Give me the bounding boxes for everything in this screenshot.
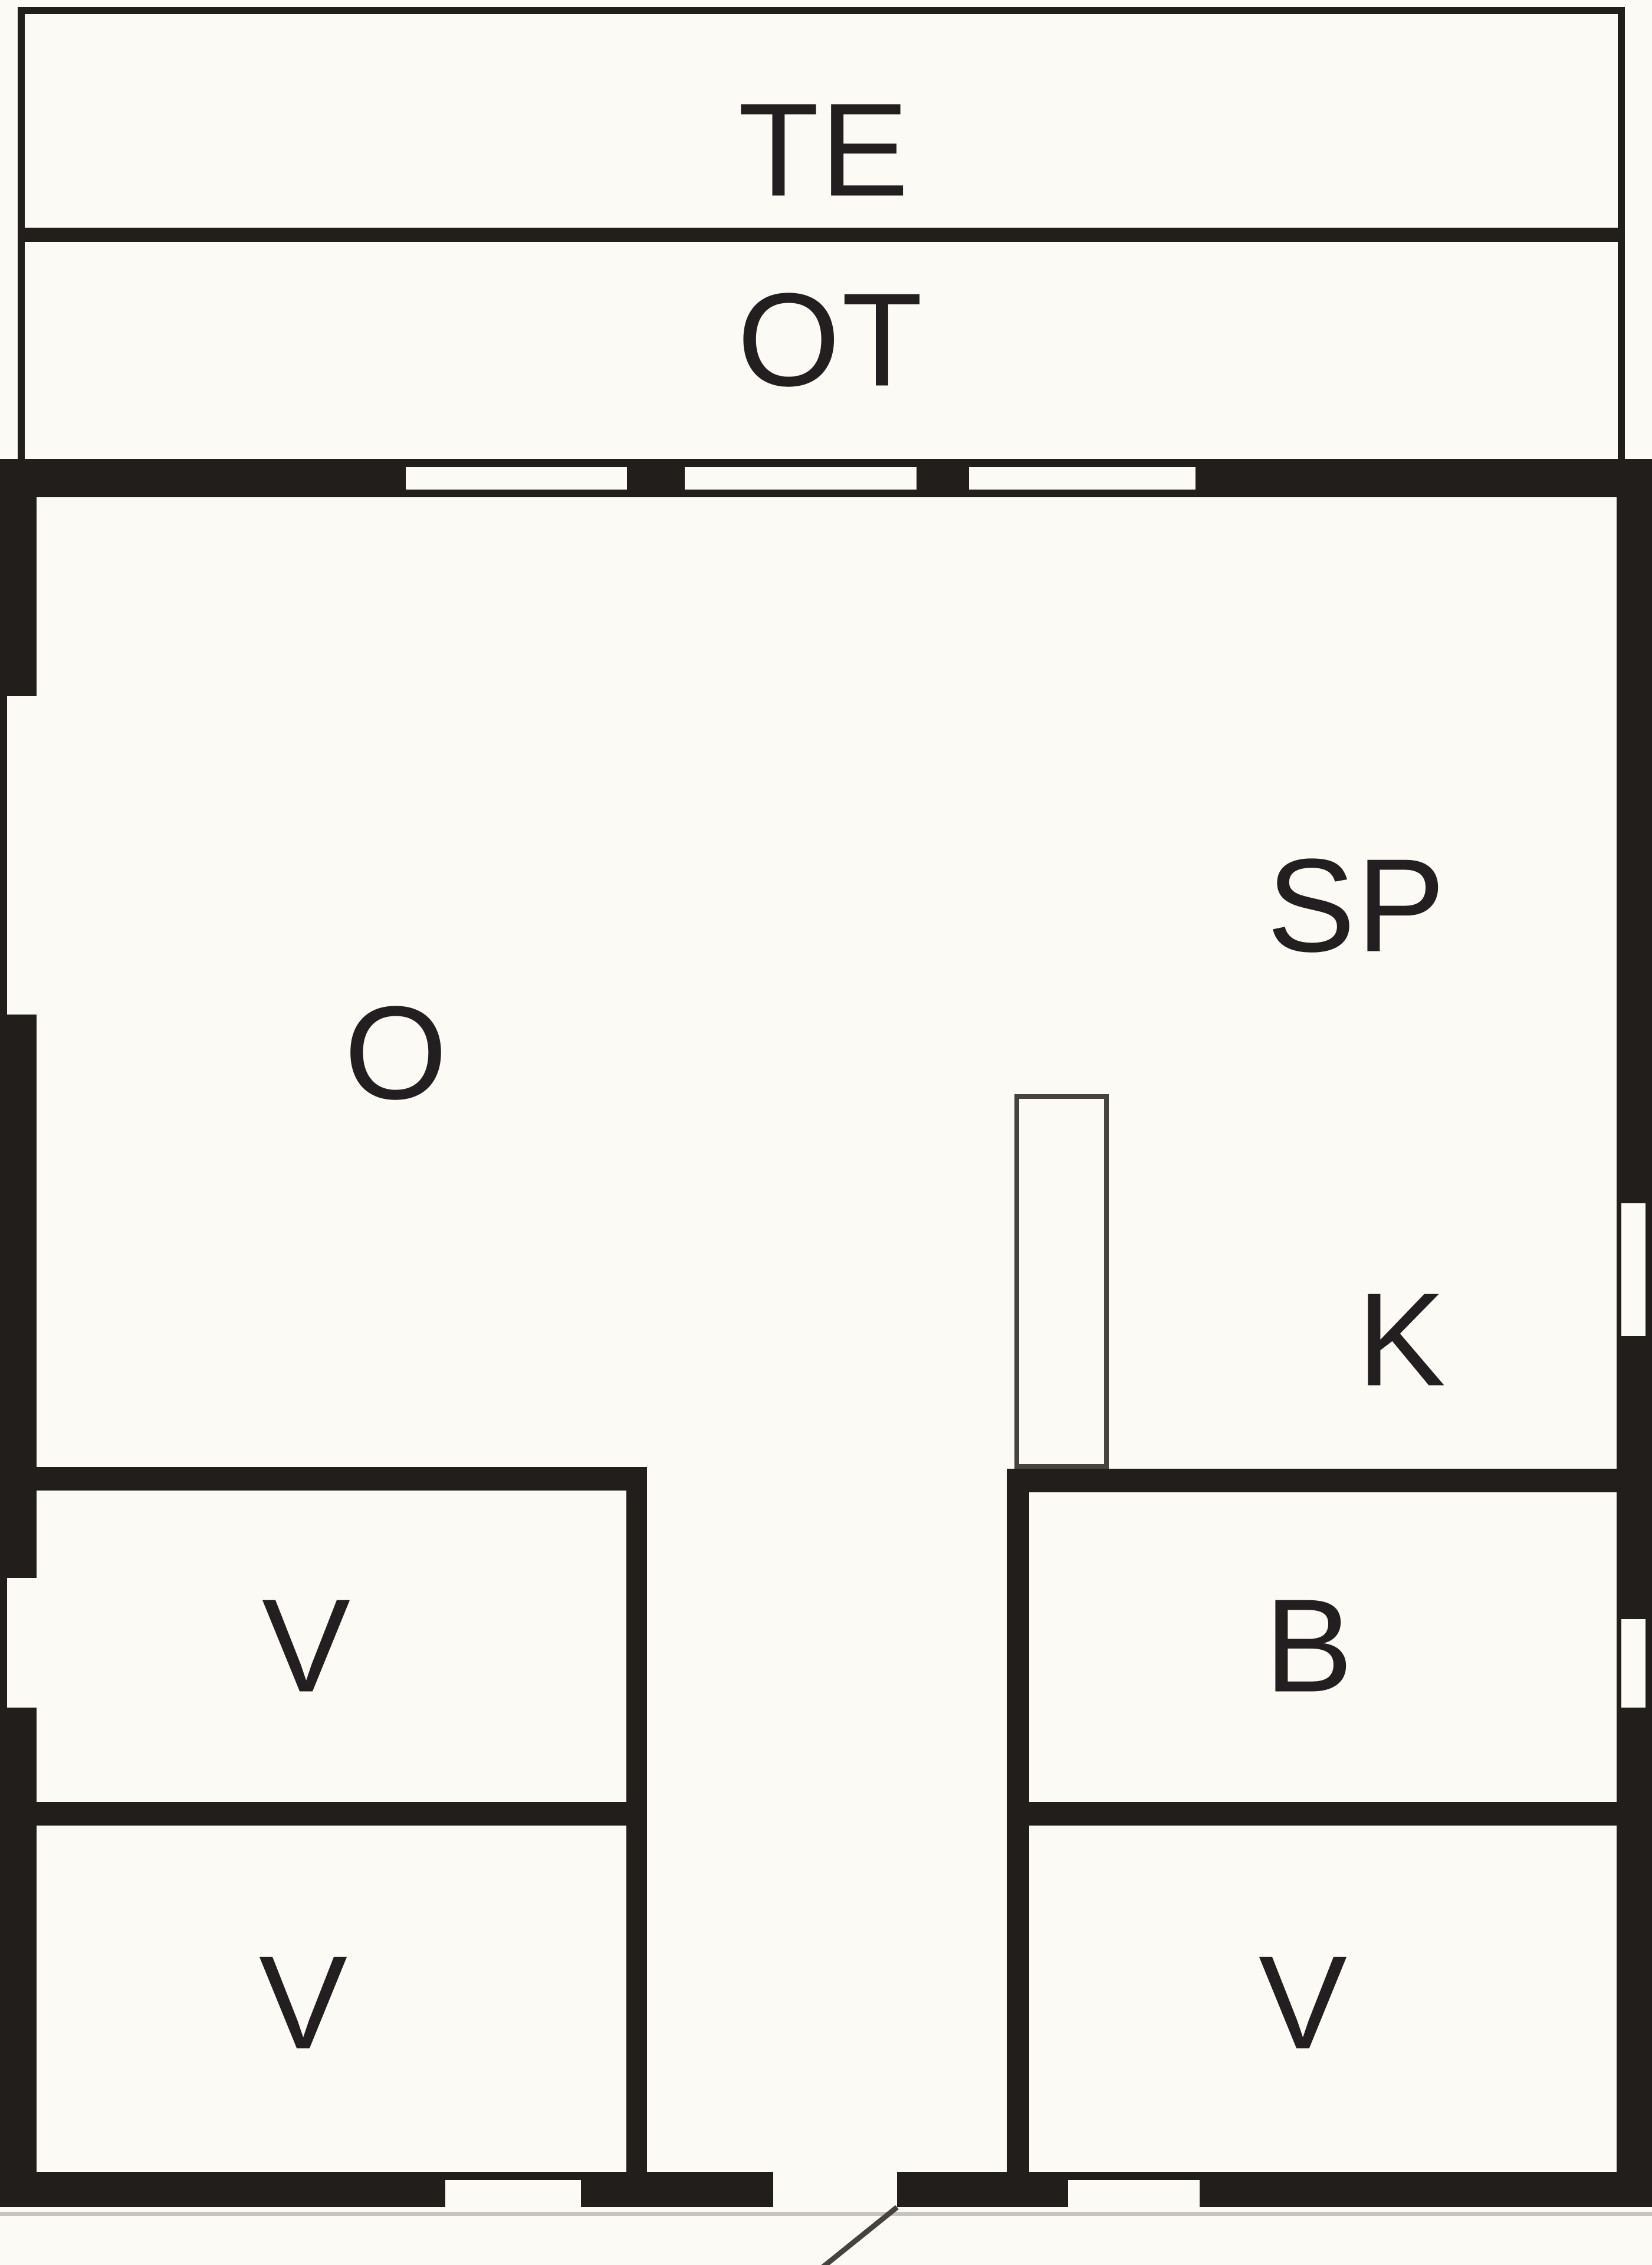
- floor-plan: TE OT O SP K V B V V: [0, 0, 1652, 2265]
- room-label-ot: OT: [737, 274, 924, 406]
- room-label-k: K: [1357, 1273, 1447, 1406]
- room-label-b: B: [1265, 1580, 1354, 1712]
- room-label-sp: SP: [1267, 839, 1446, 972]
- room-label-o: O: [344, 987, 448, 1120]
- room-label-te: TE: [738, 84, 910, 216]
- room-label-v-lower-right: V: [1259, 1936, 1348, 2069]
- room-label-v-lower-left: V: [259, 1936, 349, 2069]
- room-label-v-upper-left: V: [262, 1580, 352, 1712]
